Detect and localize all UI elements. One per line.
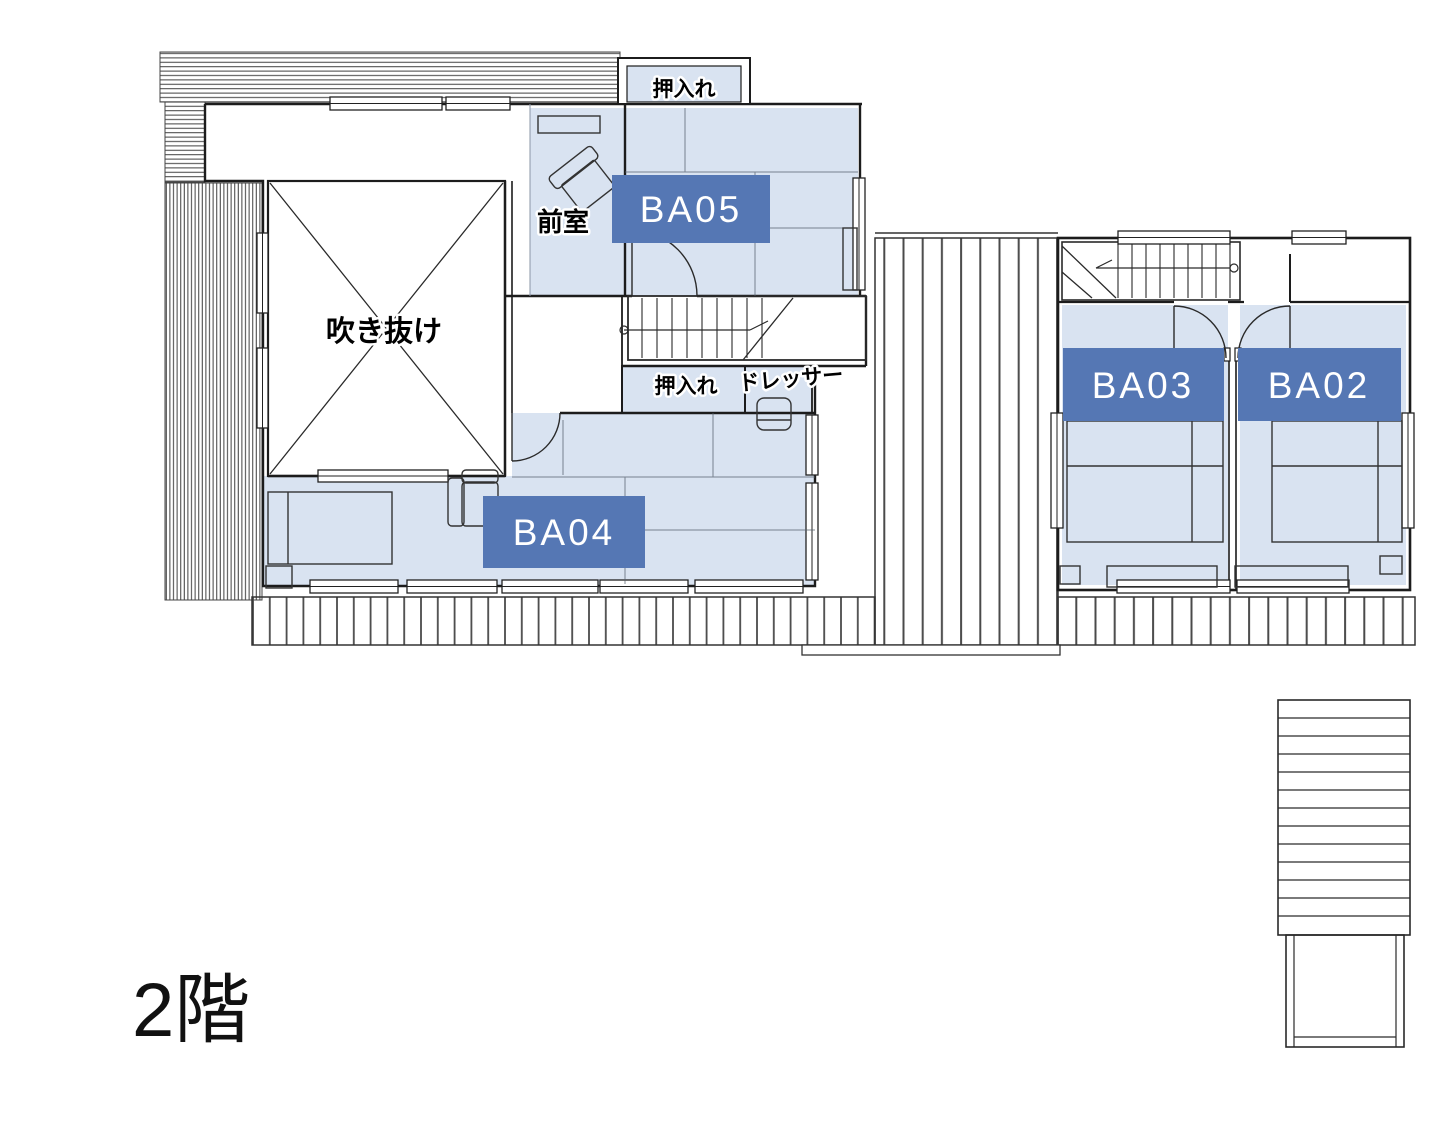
roof-overhang-left (165, 183, 262, 600)
anteroom-floor (530, 108, 625, 296)
room-tag-ba04-label: BA04 (513, 512, 616, 553)
room-ba02-floor (1240, 305, 1406, 585)
window (318, 470, 448, 482)
window (310, 580, 398, 593)
deck-courtyard (875, 238, 1058, 645)
floor-plan-drawing: 押入れ 前室 吹き抜け 押入れ ドレッサー BA05 BA04 BA03 BA0… (0, 0, 1445, 1135)
stairs-right (1062, 242, 1240, 300)
roof-overhang-top (160, 52, 620, 102)
window (1051, 413, 1063, 528)
stairs-main-break-line (743, 298, 793, 360)
roof-overhang-left-upper (165, 102, 205, 182)
stairs-main-direction-line (624, 321, 768, 330)
window (257, 348, 268, 428)
room-tag-ba03-label: BA03 (1092, 365, 1195, 406)
window (446, 97, 510, 110)
closet-top-label: 押入れ (653, 77, 716, 101)
room-tag-ba02[interactable]: BA02 (1238, 348, 1401, 421)
room-tag-ba02-label: BA02 (1268, 365, 1371, 406)
window (853, 178, 865, 290)
room-ba03-floor (1062, 305, 1228, 585)
window (806, 415, 818, 475)
room-tag-ba05[interactable]: BA05 (612, 175, 770, 243)
window (1402, 413, 1414, 528)
window (257, 233, 268, 313)
window (806, 483, 818, 580)
external-stairs-outline (1278, 700, 1410, 935)
deck-step-edge (802, 645, 1060, 655)
window (330, 97, 442, 110)
room-tag-ba03[interactable]: BA03 (1063, 348, 1224, 421)
room-tag-ba04[interactable]: BA04 (483, 496, 645, 568)
window (502, 580, 598, 593)
deck-balcony-south (252, 597, 875, 645)
stairs-main-treads (642, 298, 762, 358)
room-tag-ba05-label: BA05 (640, 189, 743, 230)
window (1292, 231, 1346, 244)
atrium-label: 吹き抜け (326, 315, 442, 348)
anteroom-label: 前室 (537, 207, 589, 237)
stairs-right-break-lines (1062, 246, 1116, 298)
stairs-right-start-marker (1230, 264, 1238, 272)
stairs-right-direction-line (1096, 260, 1230, 268)
external-stairs (1278, 700, 1410, 1047)
closet-middle-label: 押入れ (655, 374, 718, 398)
floor-plan-page: 押入れ 前室 吹き抜け 押入れ ドレッサー BA05 BA04 BA03 BA0… (0, 0, 1445, 1135)
floor-title: 2階 (132, 968, 250, 1053)
window (600, 580, 688, 593)
window (407, 580, 497, 593)
external-stairs-landing (1286, 935, 1404, 1047)
window (1118, 231, 1230, 244)
stairs-main (620, 296, 866, 360)
stairs-right-treads (1118, 244, 1230, 298)
deck-balcony-east (1058, 597, 1415, 645)
window (695, 580, 803, 593)
external-stairs-treads (1278, 718, 1410, 916)
